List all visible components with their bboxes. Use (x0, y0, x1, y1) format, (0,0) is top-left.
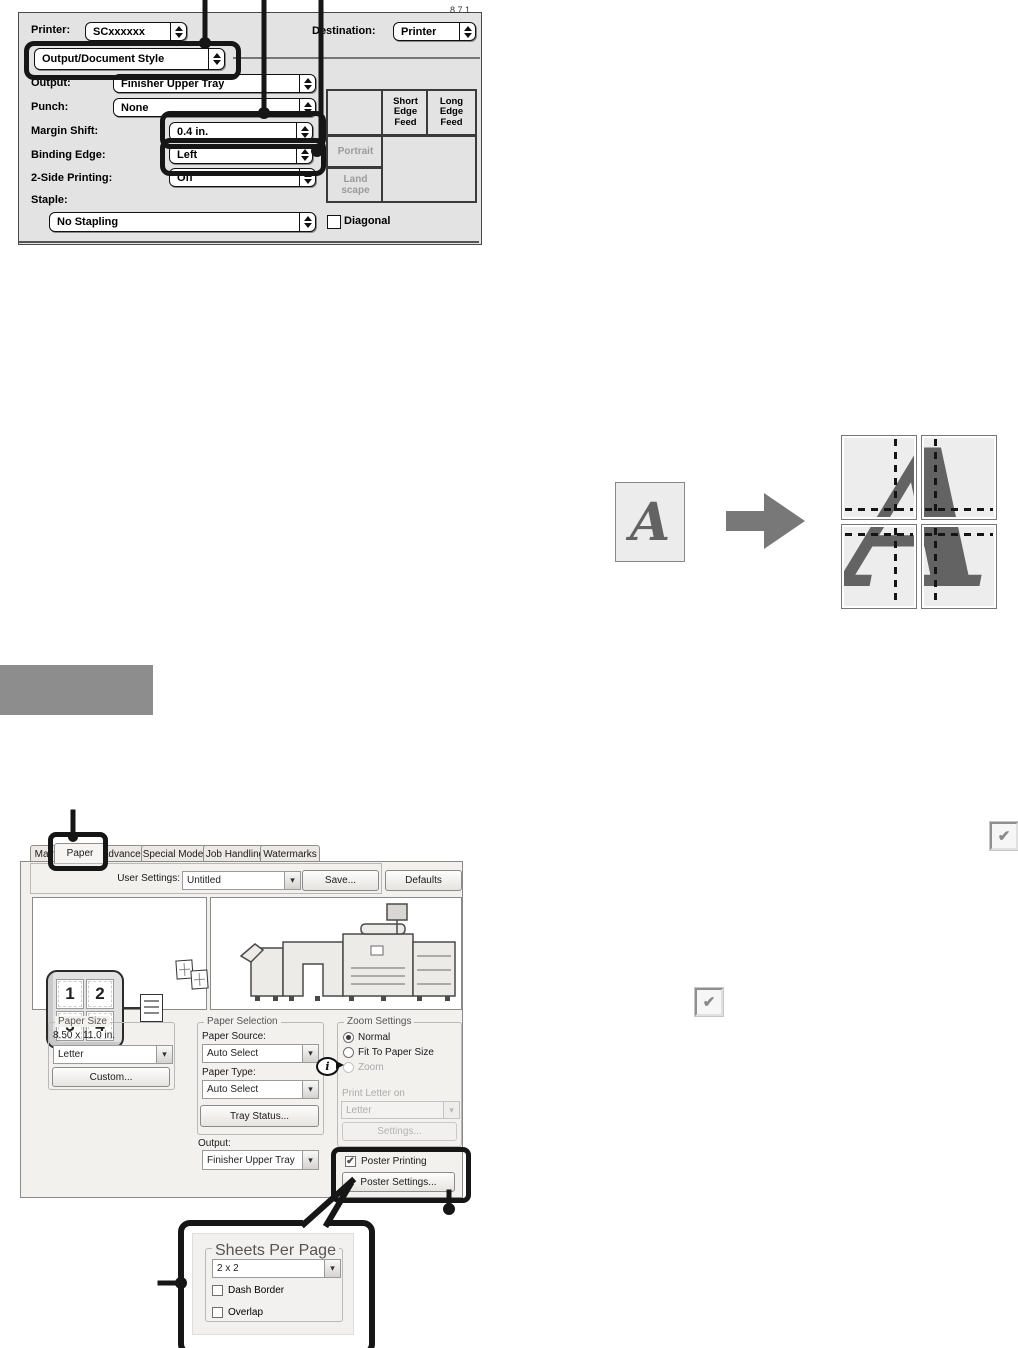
poster-sheet: A (921, 524, 997, 609)
print-letter-on-dropdown: Letter ▾ (341, 1101, 460, 1119)
poster-sheet: A (841, 435, 917, 520)
binding-edge-label: Binding Edge: (31, 149, 106, 161)
zoom-settings-title: Zoom Settings (344, 1016, 414, 1027)
settings-button: Settings... (342, 1122, 457, 1141)
paper-selection-title: Paper Selection (204, 1016, 281, 1027)
overlap-label: Overlap (228, 1307, 263, 1318)
connector-line (122, 1007, 140, 1009)
stepper-arrows-icon (299, 213, 315, 231)
callout-paper-tab (48, 832, 108, 871)
manual-page: Printer: SCxxxxxx Destination: Printer O… (0, 0, 1018, 1348)
printer-preview-panel (210, 897, 462, 1010)
stepper-arrows-icon (459, 23, 475, 40)
poster-output-grid: A A A A (841, 435, 997, 608)
chevron-down-icon[interactable]: ▾ (156, 1046, 172, 1063)
output-label: Output: (198, 1138, 231, 1149)
margin-shift-label: Margin Shift: (31, 125, 98, 137)
divider (233, 57, 480, 59)
chevron-down-icon[interactable]: ▾ (302, 1081, 318, 1098)
tab-job-handling[interactable]: Job Handling (203, 845, 267, 862)
poster-sheet: A (921, 435, 997, 520)
user-settings-dropdown[interactable]: Untitled ▾ (182, 871, 301, 890)
tray-status-button[interactable]: Tray Status... (200, 1105, 319, 1127)
custom-button[interactable]: Custom... (52, 1067, 170, 1087)
driver-version: 8.7.1 (450, 5, 470, 15)
print-letter-on-label: Print Letter on (342, 1088, 405, 1099)
paper-source-label: Paper Source: (202, 1031, 266, 1042)
feed-row-portrait: Portrait (326, 135, 385, 168)
diagonal-checkbox[interactable] (327, 215, 341, 229)
arrow-right-icon (726, 490, 808, 552)
windows-driver-dialog: Main Paper Advanced Special Modes Job Ha… (20, 843, 463, 1198)
tile-number: 1 (56, 979, 84, 1009)
destination-dropdown[interactable]: Printer (393, 22, 476, 41)
poster-sheet: A (841, 524, 917, 609)
diagonal-label: Diagonal (344, 215, 390, 227)
chevron-down-icon[interactable]: ▾ (324, 1260, 340, 1277)
checkmark-icon: ✔ (695, 988, 723, 1016)
feed-col-header-long: Long Edge Feed (426, 89, 477, 136)
save-button[interactable]: Save... (302, 870, 379, 891)
callout-binding-edge (160, 138, 326, 176)
paper-dimensions: 8.50 x 11.0 in. (53, 1030, 115, 1041)
feed-table-corner-cell (326, 89, 385, 136)
staple-label: Staple: (31, 194, 68, 206)
defaults-button[interactable]: Defaults (385, 870, 462, 891)
printer-illustration (211, 898, 461, 1009)
feed-col-header-short: Short Edge Feed (381, 89, 430, 136)
output-dropdown[interactable]: Finisher Upper Tray ▾ (202, 1150, 319, 1170)
poster-letter: A (844, 527, 914, 606)
destination-label: Destination: (312, 25, 376, 37)
two-side-label: 2-Side Printing: (31, 172, 112, 184)
poster-source-page: A (615, 482, 685, 562)
document-icon (140, 994, 163, 1022)
chevron-down-icon: ▾ (443, 1102, 459, 1118)
dash-border-checkbox[interactable] (212, 1285, 223, 1296)
divider (19, 241, 479, 243)
zoom-radio (343, 1062, 354, 1073)
user-settings-label: User Settings: (80, 873, 180, 884)
chevron-down-icon[interactable]: ▾ (302, 1151, 318, 1169)
paper-size-dropdown[interactable]: Letter ▾ (53, 1045, 173, 1064)
callout-poster-printing (331, 1147, 471, 1203)
paper-type-dropdown[interactable]: Auto Select ▾ (202, 1080, 319, 1099)
punch-label: Punch: (31, 101, 68, 113)
normal-label: Normal (358, 1032, 390, 1043)
paper-type-label: Paper Type: (202, 1067, 256, 1078)
tab-watermarks[interactable]: Watermarks (260, 845, 320, 862)
fit-to-paper-label: Fit To Paper Size (358, 1047, 434, 1058)
overlap-checkbox[interactable] (212, 1307, 223, 1318)
sheets-per-page-dropdown[interactable]: 2 x 2 ▾ (212, 1259, 341, 1278)
feed-table-body-cell (381, 135, 477, 203)
paper-size-title: Paper Size (55, 1016, 110, 1027)
tile-number: 2 (86, 979, 114, 1009)
paper-source-dropdown[interactable]: Auto Select ▾ (202, 1044, 319, 1063)
poster-settings-popup: Sheets Per Page 2 x 2 ▾ Dash Border Over… (178, 1220, 375, 1348)
layout-preview-panel: 1 2 3 4 (32, 897, 207, 1010)
pages-icon (190, 969, 208, 989)
feed-row-landscape: Land scape (326, 167, 385, 203)
staple-dropdown[interactable]: No Stapling (49, 212, 316, 232)
poster-letter: A (844, 438, 914, 517)
printer-label: Printer: (31, 24, 70, 36)
stepper-arrows-icon (299, 75, 315, 92)
poster-letter: A (630, 492, 670, 553)
fit-to-paper-radio[interactable] (343, 1047, 354, 1058)
zoom-label: Zoom (358, 1062, 384, 1073)
tab-special-modes[interactable]: Special Modes (141, 845, 210, 862)
sheets-per-page-title: Sheets Per Page (212, 1242, 339, 1260)
checkmark-icon: ✔ (990, 822, 1018, 850)
callout-section-dropdown (24, 41, 241, 80)
chevron-down-icon[interactable]: ▾ (284, 872, 300, 889)
section-heading-block (0, 665, 153, 715)
dash-border-label: Dash Border (228, 1285, 284, 1296)
printer-dropdown[interactable]: SCxxxxxx (85, 22, 187, 41)
stepper-arrows-icon (170, 23, 186, 40)
normal-radio[interactable] (343, 1032, 354, 1043)
info-callout-icon: i (316, 1057, 340, 1074)
